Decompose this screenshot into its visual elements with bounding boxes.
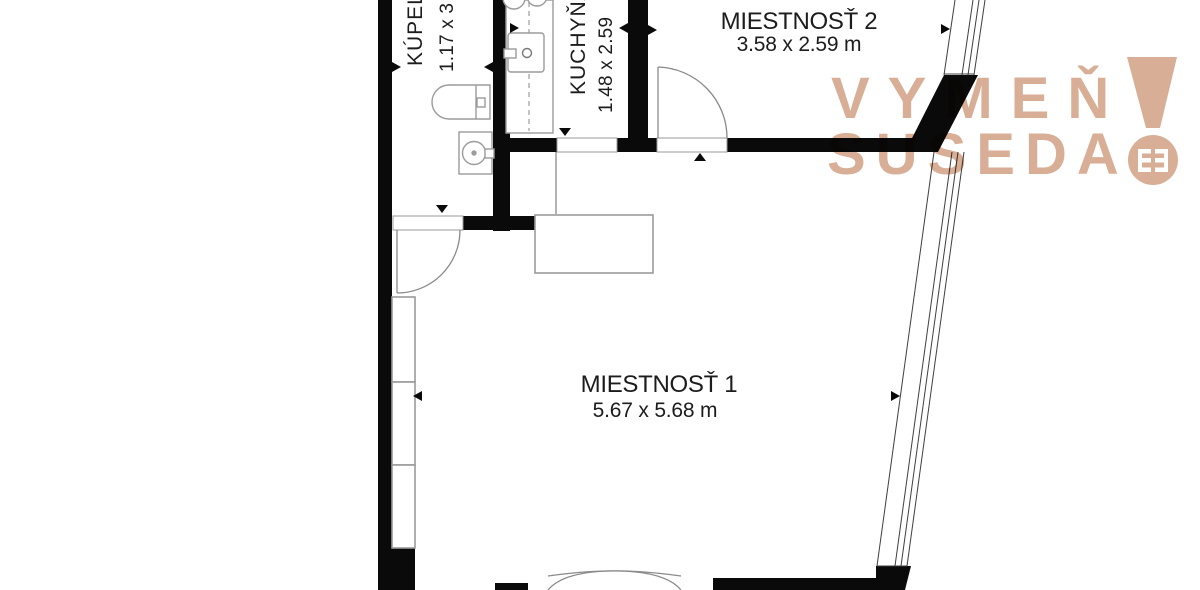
- exclamation-mark-icon: [1127, 57, 1177, 128]
- logo-circle-icon: [1128, 135, 1178, 185]
- floor-plan-page: MIESTNOSŤ 1 5.67 x 5.68 m MIESTNOSŤ 2 3.…: [0, 0, 1200, 590]
- watermark-logo: [0, 0, 1200, 590]
